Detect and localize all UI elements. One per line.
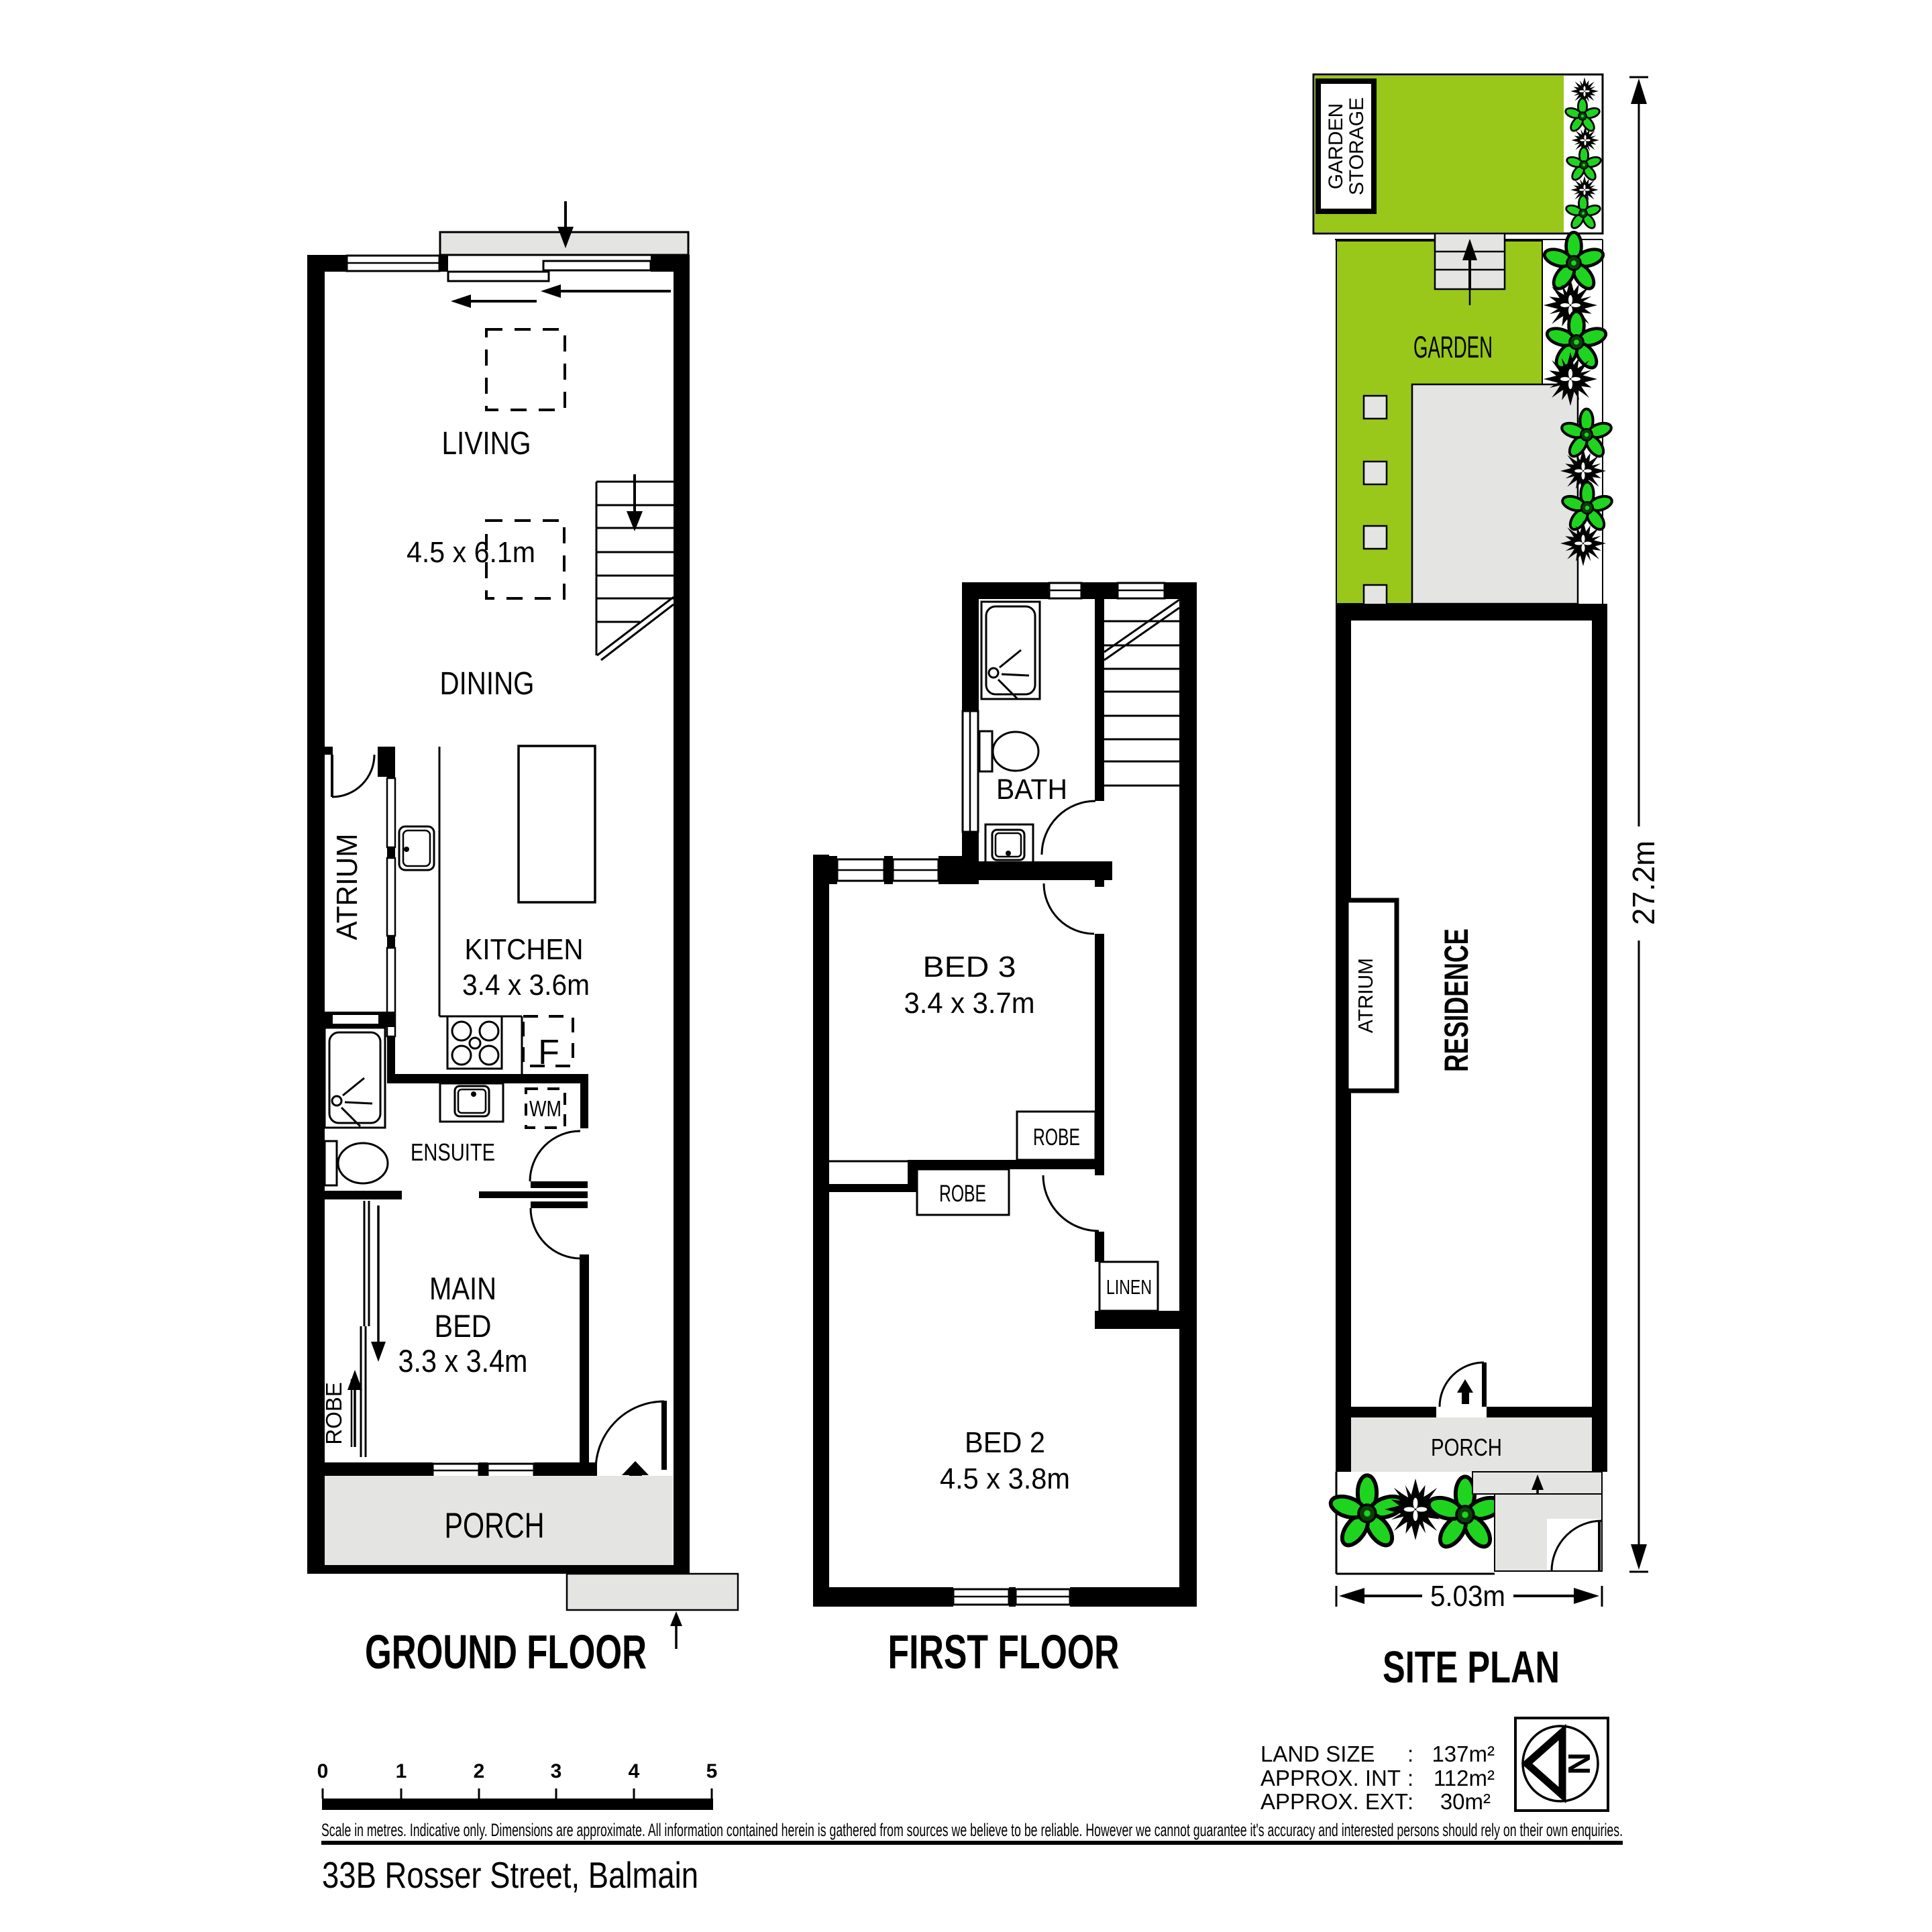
svg-text:ROBE: ROBE xyxy=(321,1382,346,1445)
svg-text:137m²: 137m² xyxy=(1432,1741,1495,1766)
svg-text:5.03m: 5.03m xyxy=(1430,1580,1505,1613)
svg-text:GROUND FLOOR: GROUND FLOOR xyxy=(365,1626,647,1679)
svg-text:LINEN: LINEN xyxy=(1106,1275,1152,1299)
svg-text:GARDEN: GARDEN xyxy=(1325,103,1347,189)
svg-text:ROBE: ROBE xyxy=(939,1181,986,1207)
svg-text:F: F xyxy=(538,1033,559,1072)
svg-text:LIVING: LIVING xyxy=(442,426,531,462)
svg-text:WM: WM xyxy=(529,1096,561,1121)
svg-text::: : xyxy=(1407,1766,1413,1790)
svg-text::: : xyxy=(1407,1789,1413,1814)
svg-text:ENSUITE: ENSUITE xyxy=(411,1138,495,1166)
svg-text:27.2m: 27.2m xyxy=(1626,841,1661,925)
svg-text:0: 0 xyxy=(317,1760,329,1782)
svg-text:112m²: 112m² xyxy=(1434,1766,1495,1790)
svg-text:4: 4 xyxy=(629,1760,640,1782)
svg-text:3.3 x 3.4m: 3.3 x 3.4m xyxy=(398,1343,528,1379)
svg-text:5: 5 xyxy=(706,1760,718,1782)
svg-text:BATH: BATH xyxy=(996,773,1067,806)
svg-text:3: 3 xyxy=(551,1760,562,1782)
svg-text:RESIDENCE: RESIDENCE xyxy=(1438,928,1475,1072)
svg-text:APPROX. INT: APPROX. INT xyxy=(1260,1766,1401,1790)
svg-text::: : xyxy=(1407,1741,1413,1766)
svg-text:MAIN: MAIN xyxy=(429,1271,496,1306)
svg-text:DINING: DINING xyxy=(440,666,535,702)
svg-text:4.5 x 6.1m: 4.5 x 6.1m xyxy=(407,536,535,569)
svg-text:4.5 x 3.8m: 4.5 x 3.8m xyxy=(940,1462,1070,1495)
svg-text:2: 2 xyxy=(474,1760,485,1782)
svg-text:KITCHEN: KITCHEN xyxy=(465,933,584,966)
svg-text:30m²: 30m² xyxy=(1440,1789,1491,1814)
svg-text:APPROX. EXT: APPROX. EXT xyxy=(1260,1789,1408,1814)
svg-text:SITE PLAN: SITE PLAN xyxy=(1383,1642,1560,1693)
svg-text:ATRIUM: ATRIUM xyxy=(331,834,364,941)
svg-text:BED 3: BED 3 xyxy=(923,951,1016,983)
svg-text:FIRST FLOOR: FIRST FLOOR xyxy=(888,1626,1120,1679)
svg-text:3.4 x 3.7m: 3.4 x 3.7m xyxy=(904,987,1035,1020)
svg-text:ATRIUM: ATRIUM xyxy=(1354,958,1377,1033)
svg-text:33B Rosser Street, Balmain: 33B Rosser Street, Balmain xyxy=(322,1854,698,1896)
svg-text:N: N xyxy=(1562,1752,1597,1774)
svg-text:LAND SIZE: LAND SIZE xyxy=(1260,1741,1375,1766)
svg-text:STORAGE: STORAGE xyxy=(1346,97,1368,195)
svg-text:PORCH: PORCH xyxy=(445,1506,545,1546)
svg-text:3.4 x 3.6m: 3.4 x 3.6m xyxy=(462,969,590,1002)
svg-text:1: 1 xyxy=(396,1760,407,1782)
svg-text:Scale in metres. Indicative on: Scale in metres. Indicative only. Dimens… xyxy=(321,1820,1623,1840)
svg-text:GARDEN: GARDEN xyxy=(1413,330,1493,364)
svg-text:ROBE: ROBE xyxy=(1033,1124,1080,1150)
svg-text:BED 2: BED 2 xyxy=(965,1426,1045,1459)
svg-text:BED: BED xyxy=(435,1308,492,1344)
svg-text:PORCH: PORCH xyxy=(1431,1434,1502,1461)
